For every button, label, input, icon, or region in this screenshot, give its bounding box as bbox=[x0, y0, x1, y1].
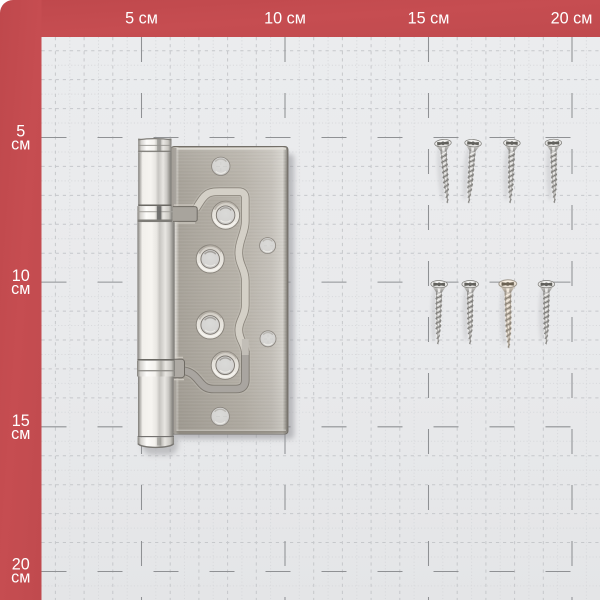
svg-text:5 см: 5 см bbox=[125, 10, 158, 28]
svg-text:20 см: 20 см bbox=[551, 10, 593, 28]
svg-text:10 см: 10 см bbox=[264, 10, 306, 28]
svg-text:см: см bbox=[11, 425, 30, 443]
svg-text:см: см bbox=[11, 280, 30, 298]
svg-text:см: см bbox=[11, 569, 30, 587]
svg-text:см: см bbox=[11, 136, 30, 154]
svg-text:15 см: 15 см bbox=[408, 10, 450, 28]
